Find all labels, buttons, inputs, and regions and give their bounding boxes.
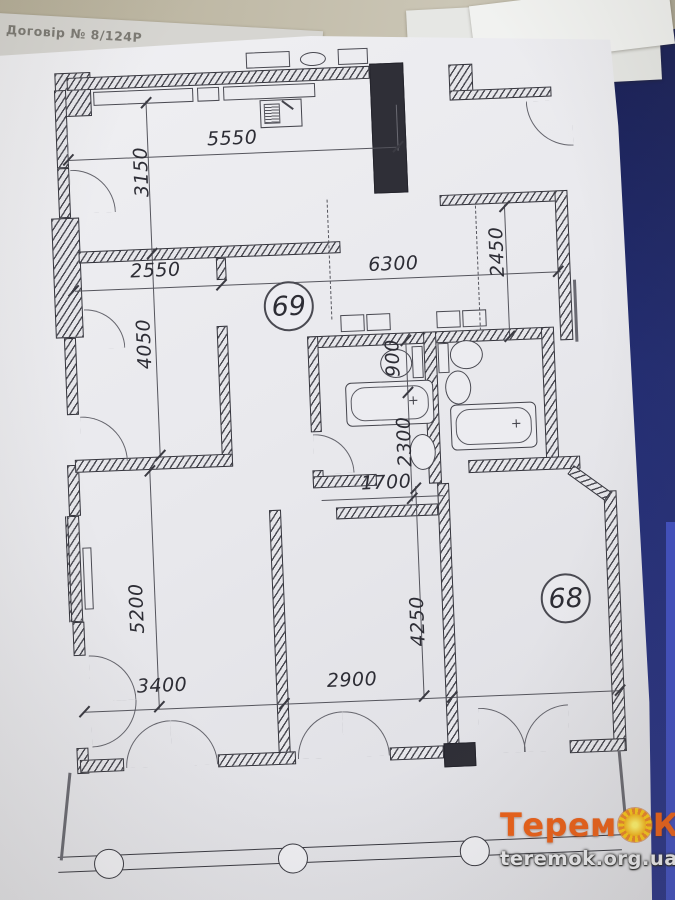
door-arc bbox=[296, 711, 344, 759]
dim-3400: 3400 bbox=[137, 674, 188, 698]
balcony-column bbox=[459, 836, 490, 867]
dim-2900: 2900 bbox=[326, 668, 377, 692]
bathroom-diagonal-wall bbox=[567, 465, 611, 501]
sun-logo-icon bbox=[618, 808, 652, 842]
sink-right bbox=[445, 370, 472, 405]
toilet-right-bowl bbox=[449, 339, 483, 369]
dim-3150: 3150 bbox=[129, 146, 153, 197]
bathroom-left-wall bbox=[307, 336, 322, 432]
unit-number-69: 69 bbox=[271, 290, 307, 322]
wall-bottom-pier bbox=[443, 742, 476, 767]
pillar-shaft bbox=[369, 62, 408, 193]
door-arc bbox=[84, 308, 126, 350]
vanity-unit bbox=[436, 310, 461, 328]
wall-room-divider-left bbox=[269, 510, 291, 762]
electrical-panel bbox=[260, 99, 303, 129]
door-arc bbox=[89, 654, 137, 702]
dim-line-1700 bbox=[322, 495, 444, 501]
wall-left bbox=[57, 168, 71, 218]
wall-bottom bbox=[218, 751, 296, 767]
bathroom-bottom-wall-right bbox=[468, 456, 580, 473]
toilet-right-tank bbox=[437, 343, 449, 373]
dim-2300: 2300 bbox=[393, 416, 417, 467]
floor-plan: 5550 3150 2550 6300 2450 4050 900 2300 1… bbox=[0, 38, 649, 892]
door-arc bbox=[124, 720, 172, 768]
unit-circle-68: 68 bbox=[540, 572, 592, 624]
wall-bottom bbox=[80, 758, 124, 773]
vanity-unit bbox=[462, 309, 487, 327]
dim-line-5200 bbox=[149, 469, 160, 709]
brand-text-prefix: Терем bbox=[500, 806, 617, 844]
neighbor-sink-square bbox=[338, 48, 369, 65]
kitchen-counter bbox=[197, 87, 220, 102]
floorplan-photo: Договір № 8/124Р bbox=[0, 0, 675, 900]
door-arc bbox=[342, 710, 390, 758]
door-arc bbox=[526, 100, 574, 148]
wall-2550 bbox=[78, 241, 340, 264]
wall-2550-stub bbox=[216, 258, 227, 280]
wall-right-lower bbox=[603, 490, 626, 751]
dim-900: 900 bbox=[381, 339, 404, 378]
dim-1700: 1700 bbox=[361, 470, 412, 494]
brand-text-suffix: К bbox=[653, 806, 675, 844]
unit-circle-69: 69 bbox=[263, 280, 315, 332]
wall-room-divider-right bbox=[437, 483, 460, 745]
dim-line-4250 bbox=[415, 486, 425, 698]
wall-mid-left-vertical bbox=[217, 326, 234, 466]
corridor-wall-1700 bbox=[336, 503, 438, 519]
door-arc bbox=[522, 704, 570, 752]
wall-left-window bbox=[65, 516, 83, 622]
dim-5550: 5550 bbox=[207, 126, 258, 150]
wall-left-window-pier bbox=[51, 218, 84, 339]
dim-5200: 5200 bbox=[125, 583, 149, 634]
watermark-brand: Терем К bbox=[500, 806, 675, 844]
bathtub-right bbox=[450, 401, 538, 450]
bathtub-left bbox=[345, 379, 435, 426]
neighbor-stove bbox=[246, 51, 291, 69]
watermark: Терем К teremok.org.ua bbox=[500, 806, 675, 870]
balcony-side-left bbox=[60, 773, 71, 861]
neighbor-sink-round bbox=[300, 52, 327, 67]
loggia-rail bbox=[573, 280, 578, 342]
toilet-left-tank bbox=[412, 346, 424, 378]
door-arc bbox=[478, 706, 526, 754]
door-arc bbox=[313, 433, 355, 475]
wall-left bbox=[72, 622, 85, 656]
door-arc bbox=[170, 718, 218, 766]
dim-6300: 6300 bbox=[368, 252, 419, 276]
vanity-unit bbox=[340, 314, 365, 332]
unit-number-68: 68 bbox=[548, 582, 584, 614]
watermark-url: teremok.org.ua bbox=[500, 847, 675, 870]
kitchen-counter bbox=[223, 83, 315, 101]
dim-4050: 4050 bbox=[132, 318, 156, 369]
dim-2450: 2450 bbox=[485, 226, 509, 277]
wall-bottom bbox=[390, 745, 444, 760]
door-arc bbox=[91, 700, 139, 748]
door-arc bbox=[80, 415, 128, 463]
dim-4250: 4250 bbox=[406, 596, 430, 647]
loggia-right-wall bbox=[554, 190, 573, 340]
dashed-line bbox=[327, 200, 333, 320]
bathroom-right-wall bbox=[541, 327, 559, 461]
dim-2550: 2550 bbox=[130, 259, 181, 283]
balcony-column bbox=[277, 843, 308, 874]
radiator bbox=[82, 547, 93, 609]
door-arc bbox=[70, 168, 116, 214]
balcony-column bbox=[93, 848, 124, 879]
vanity-unit bbox=[366, 313, 391, 331]
wall-left bbox=[64, 338, 79, 415]
